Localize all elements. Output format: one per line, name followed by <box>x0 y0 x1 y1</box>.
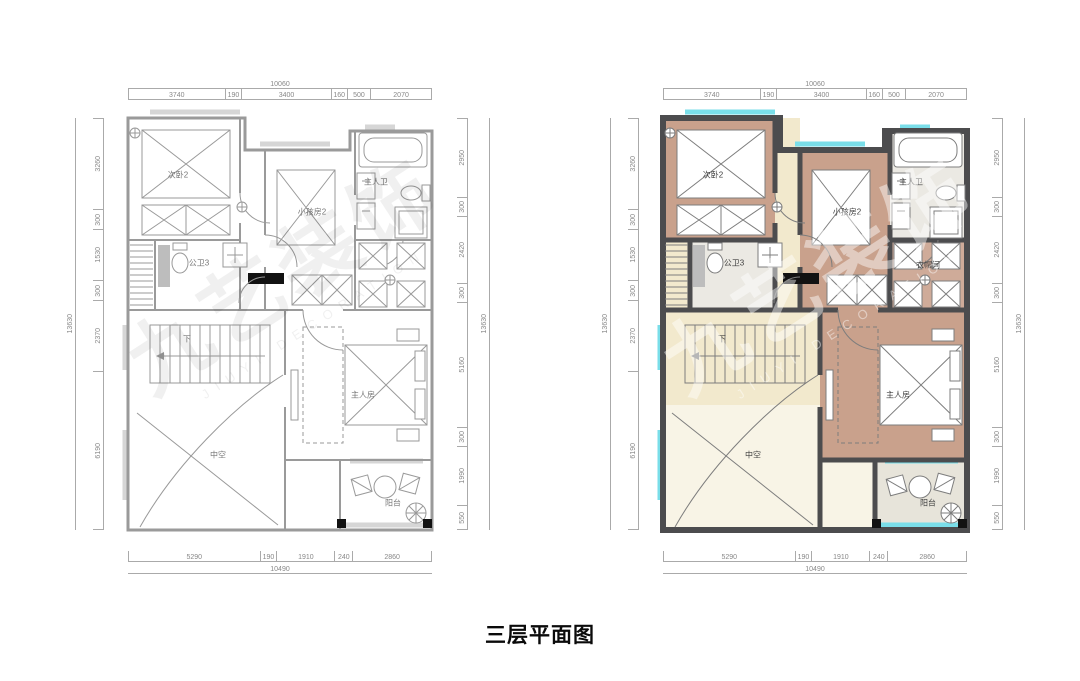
dim-value: 1530 <box>630 247 637 263</box>
dim-value: 6190 <box>630 443 637 459</box>
dim-value: 240 <box>869 551 887 561</box>
room-label-void: 中空 <box>210 450 226 461</box>
room-label-master-bedroom: 主人房 <box>351 390 375 401</box>
dim-chain-right: 2950 300 2420 300 5160 300 1990 550 <box>457 118 468 530</box>
dim-value: 1990 <box>994 468 1001 484</box>
dim-value: 500 <box>882 89 905 99</box>
dim-value: 1530 <box>95 247 102 263</box>
dim-value: 190 <box>760 89 777 99</box>
dim-value: 13630 <box>1016 314 1023 333</box>
floorplan-canvas <box>580 75 1040 585</box>
dim-value: 2370 <box>95 328 102 344</box>
dim-value: 300 <box>630 214 637 226</box>
dim-chain-top: 3740 190 3400 160 500 2070 <box>663 89 967 100</box>
floorplan-canvas <box>45 75 505 585</box>
dim-value: 5290 <box>128 551 260 561</box>
dim-value: 2420 <box>994 242 1001 258</box>
dim-value: 240 <box>334 551 352 561</box>
dim-value: 2370 <box>630 328 637 344</box>
dim-chain-bottom: 5290 190 1910 240 2860 <box>128 551 432 562</box>
dim-value: 2420 <box>459 242 466 258</box>
room-label-bedroom2: 次卧2 <box>703 170 723 181</box>
dim-value: 3740 <box>128 89 225 99</box>
room-label-master-bath: 主人卫 <box>364 177 388 188</box>
dim-value: 3260 <box>95 156 102 172</box>
dim-value: 10060 <box>270 81 289 88</box>
dim-value: 3400 <box>241 89 330 99</box>
dim-value: 300 <box>95 285 102 297</box>
stairs-down-label: 下 <box>183 334 191 345</box>
dim-value: 5290 <box>663 551 795 561</box>
page-title: 三层平面图 <box>440 619 640 649</box>
dim-value: 300 <box>459 201 466 213</box>
dim-value: 160 <box>331 89 347 99</box>
dim-value: 300 <box>459 431 466 443</box>
dim-value: 2950 <box>994 150 1001 166</box>
dim-total-bottom: 10490 <box>128 563 432 574</box>
room-label-bath3: 公卫3 <box>189 258 209 269</box>
dim-value: 300 <box>994 431 1001 443</box>
dim-chain-bottom: 5290 190 1910 240 2860 <box>663 551 967 562</box>
dim-value: 300 <box>630 285 637 297</box>
dim-total-right: 13630 <box>479 118 490 530</box>
dim-value: 1990 <box>459 468 466 484</box>
dim-value: 3740 <box>663 89 760 99</box>
dim-value: 13630 <box>67 314 74 333</box>
dim-chain-right: 2950 300 2420 300 5160 300 1990 550 <box>992 118 1003 530</box>
room-label-master-bath: 主人卫 <box>899 177 923 188</box>
dim-value: 2070 <box>370 89 432 99</box>
dim-value: 10060 <box>805 81 824 88</box>
dim-value: 5160 <box>994 357 1001 373</box>
dim-value: 10490 <box>270 566 289 573</box>
room-label-kids-room: 小孩房2 <box>298 207 326 218</box>
dim-value: 13630 <box>481 314 488 333</box>
floorplan-line-version: 九艺装饰 JIUYI DECORATION 次卧2 小孩房2 主人卫 公卫3 主… <box>45 75 505 585</box>
dim-total-right: 13630 <box>1014 118 1025 530</box>
dim-value: 160 <box>866 89 882 99</box>
dim-value: 3400 <box>776 89 865 99</box>
dim-value: 550 <box>994 512 1001 524</box>
dim-chain-left: 3260 300 1530 300 2370 6190 <box>93 118 104 530</box>
dim-value: 550 <box>459 512 466 524</box>
dim-value: 2070 <box>905 89 967 99</box>
dim-value: 300 <box>95 214 102 226</box>
dim-value: 190 <box>225 89 242 99</box>
room-label-bath3: 公卫3 <box>724 258 744 269</box>
floorplan-color-version: 九艺装饰 JIUYI DECORATION 次卧2 小孩房2 主人卫 公卫3 衣… <box>580 75 1040 585</box>
room-label-bedroom2: 次卧2 <box>168 170 188 181</box>
dim-chain-top: 3740 190 3400 160 500 2070 <box>128 89 432 100</box>
dim-value: 3260 <box>630 156 637 172</box>
dim-value: 300 <box>994 287 1001 299</box>
dim-value: 190 <box>260 551 277 561</box>
dim-value: 2950 <box>459 150 466 166</box>
dim-value: 1910 <box>276 551 334 561</box>
dim-value: 190 <box>795 551 812 561</box>
dim-chain-left: 3260 300 1530 300 2370 6190 <box>628 118 639 530</box>
dim-value: 2860 <box>887 551 967 561</box>
dim-total-bottom: 10490 <box>663 563 967 574</box>
room-label-balcony: 阳台 <box>385 498 401 509</box>
dim-total-top: 10060 <box>128 78 432 89</box>
room-label-cloakroom: 衣帽间 <box>916 260 940 271</box>
room-label-kids-room: 小孩房2 <box>833 207 861 218</box>
dim-value: 300 <box>994 201 1001 213</box>
dim-total-left: 13630 <box>600 118 611 530</box>
dim-value: 500 <box>347 89 370 99</box>
room-label-balcony: 阳台 <box>920 498 936 509</box>
dim-value: 300 <box>459 287 466 299</box>
dim-value: 13630 <box>602 314 609 333</box>
dim-value: 6190 <box>95 443 102 459</box>
room-label-master-bedroom: 主人房 <box>886 390 910 401</box>
dim-value: 2860 <box>352 551 432 561</box>
dim-value: 10490 <box>805 566 824 573</box>
dim-value: 5160 <box>459 357 466 373</box>
dim-value: 1910 <box>811 551 869 561</box>
dim-total-top: 10060 <box>663 78 967 89</box>
room-label-void: 中空 <box>745 450 761 461</box>
dim-total-left: 13630 <box>65 118 76 530</box>
stairs-down-label: 下 <box>718 334 726 345</box>
